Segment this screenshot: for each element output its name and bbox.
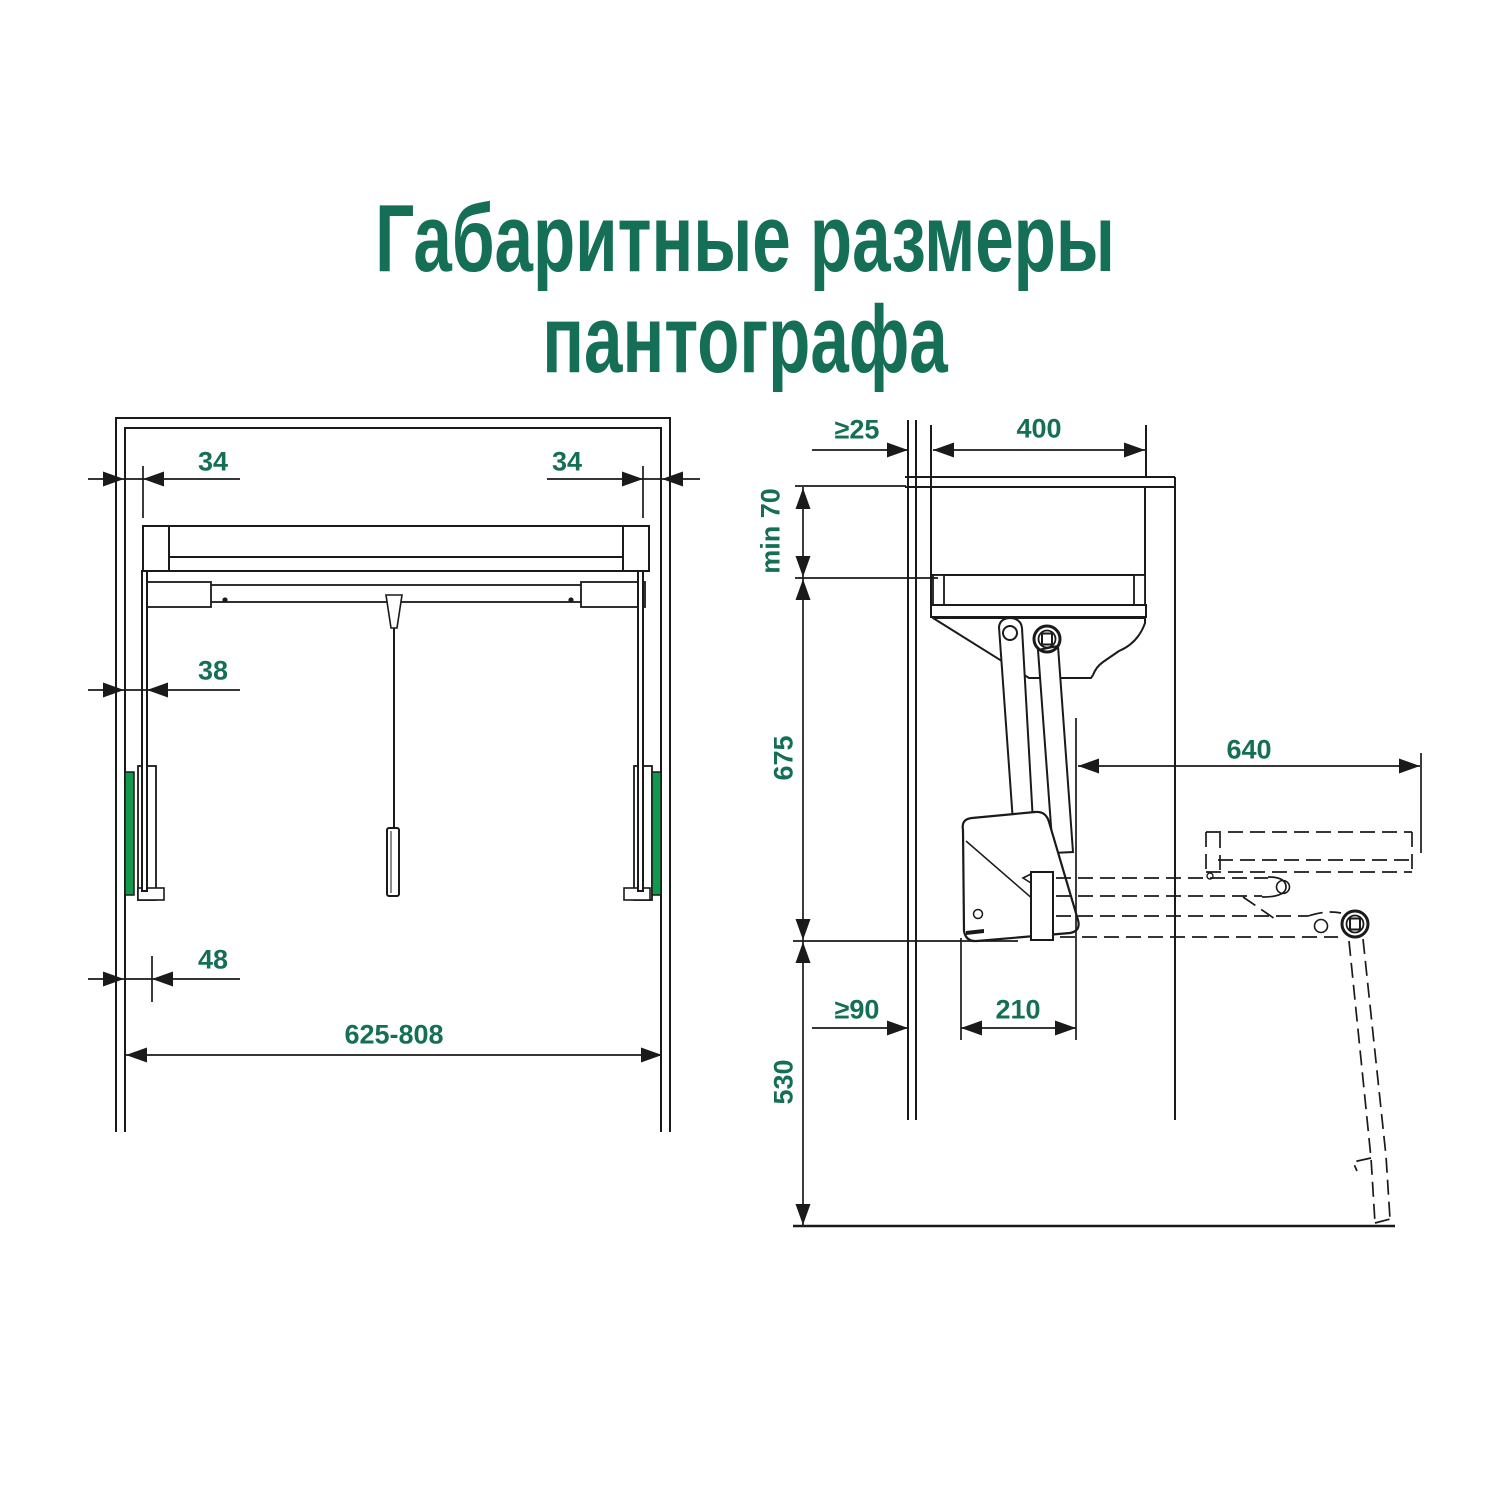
dim-label-front-gap: ≥90 xyxy=(835,997,880,1024)
arm-strap xyxy=(1031,872,1053,940)
lowered-rail xyxy=(1206,832,1412,872)
dim-label-rail-inset: 38 xyxy=(198,658,228,685)
swing-handle-arm xyxy=(1349,939,1390,1223)
back-panel xyxy=(908,420,916,1120)
green-strip-right xyxy=(652,772,661,895)
drawing-canvas xyxy=(0,0,1500,1499)
side-view-dimensions xyxy=(793,450,1421,1226)
dimension-diagram-page: Габаритные размеры пантографа xyxy=(0,0,1500,1499)
dim-label-body-height: 675 xyxy=(771,735,798,780)
green-strip-left xyxy=(125,772,134,895)
dim-label-back-gap: ≥25 xyxy=(835,417,880,444)
cord-hanger xyxy=(386,595,402,628)
arm-pivot-hole xyxy=(1003,626,1017,640)
dim-label-bracket-width: 48 xyxy=(198,947,228,974)
dim-label-floor-clearance: 530 xyxy=(771,1059,798,1104)
dim-label-width-range: 625-808 xyxy=(344,1022,443,1049)
dim-label-reveal-right: 34 xyxy=(552,449,582,476)
dim-label-arm-extension: 640 xyxy=(1226,737,1271,764)
rail-sleeve-left xyxy=(147,582,211,607)
cabinet-bottom-panel xyxy=(931,605,1146,617)
rail-sleeve-right xyxy=(581,582,645,607)
side-view-lowered-position xyxy=(1056,832,1412,1223)
lift-rail-left xyxy=(142,571,147,891)
extended-arm-front xyxy=(1056,916,1338,937)
dim-label-top-clearance: min 70 xyxy=(758,488,785,574)
dim-label-mechanism-depth: 210 xyxy=(995,997,1040,1024)
extended-arm-rear xyxy=(1056,878,1268,896)
lowered-position-joints xyxy=(1207,873,1368,937)
dim-label-cabinet-depth: 400 xyxy=(1016,416,1061,443)
lift-rail-right xyxy=(638,571,643,891)
side-cabinet-top xyxy=(905,477,1175,487)
top-rail xyxy=(143,526,649,571)
dim-label-reveal-left: 34 xyxy=(198,449,228,476)
pull-handle xyxy=(387,828,399,896)
side-view-arrows xyxy=(796,443,1421,1226)
